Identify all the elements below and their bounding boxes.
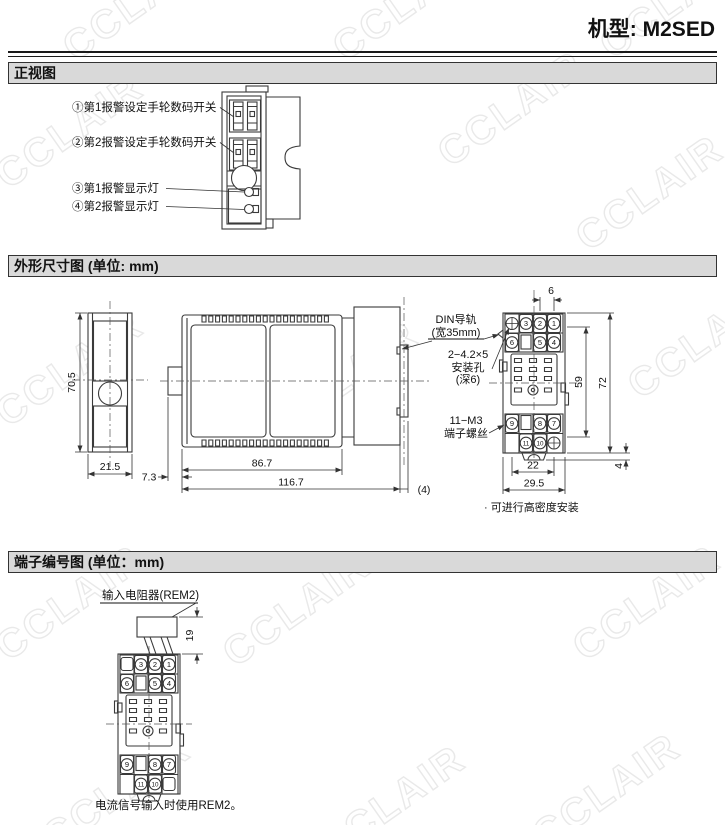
terminal-3: 3 [139,660,143,669]
dim-height-72: 72 [597,377,609,389]
dim-bezel-7-3: 7.3 [142,472,157,484]
terminal-1: 1 [167,660,171,669]
alarm-lamp-2 [245,205,254,214]
callout-switch-2: ②第2报警设定手轮数码开关 [72,135,217,149]
datasheet-page: CCLAIR CCLAIR CCLAIR CCLAIR CCLAIR CCLAI… [0,0,725,825]
front-view-device [222,86,300,229]
dim-height-70-5: 70.5 [66,372,78,393]
terminal-2: 2 [153,660,157,669]
section-title: 正视图 [14,65,56,81]
front-view-diagram: ①第1报警设定手轮数码开关 ②第2报警设定手轮数码开关 ③第1报警显示灯 ④第2… [0,85,725,255]
current-signal-note: 电流信号输入时使用REM2。 [95,798,242,812]
dim-front-view-drawing: 70.5 21.5 [66,301,148,479]
terminal-7: 7 [552,419,556,428]
dim-row-span-59: 59 [573,376,585,388]
watermark-text: CCLAIR [55,0,219,69]
terminal-screw-label-line2: 端子螺丝 [444,427,488,440]
terminal-6: 6 [125,679,129,688]
terminal-11: 11 [523,440,530,447]
rem2-resistor [137,617,177,637]
dim-total-116-7: 116.7 [278,477,304,489]
terminal-4: 4 [552,338,556,347]
alarm-lamp-1 [245,188,254,197]
section-header-terminal-diagram: 端子编号图 (单位：mm) [8,551,717,573]
terminal-4: 4 [167,679,171,688]
section-title: 端子编号图 (单位：mm) [14,554,164,570]
terminal-5: 5 [538,338,542,347]
callout-switch-1: ①第1报警设定手轮数码开关 [72,100,217,114]
dim-width-inner-22: 22 [527,460,539,472]
high-density-note: · 可进行高密度安装 [484,500,579,514]
resistor-label: 输入电阻器(REM2) [102,588,199,602]
dim-body-86-7: 86.7 [252,458,273,470]
terminal-5: 5 [153,679,157,688]
terminal-10: 10 [151,781,159,788]
terminal-8: 8 [538,419,542,428]
page-title: 机型: M2SED [588,13,715,43]
dim-side-view-drawing: 7.3 86.7 116.7 (4) [142,297,432,496]
terminal-9: 9 [125,760,129,769]
dim-rail-4: (4) [418,484,431,496]
terminal-11: 11 [138,781,145,788]
terminal-6: 6 [510,338,514,347]
callout-lamp-2: ④第2报警显示灯 [72,199,159,213]
dim-pitch-6: 6 [548,285,554,297]
terminal-3: 3 [524,319,528,328]
dim-foot-4: 4 [613,463,625,469]
terminal-screw-label-line1: 11−M3 [449,415,482,427]
header-rule [8,51,717,57]
terminal-7: 7 [167,760,171,769]
terminal-10: 10 [536,440,544,447]
section-header-front-view: 正视图 [8,62,717,84]
mounting-hole-label-line3: (深6) [456,373,480,386]
outline-dimensions-diagram: 70.5 21.5 [0,285,725,550]
terminal-numbering-diagram: 输入电阻器(REM2) 19 3 2 1 [0,578,725,825]
terminal-1: 1 [552,319,556,328]
callout-lamp-1: ③第1报警显示灯 [72,181,159,195]
din-rail-label-line2: (宽35mm) [432,325,481,339]
mounting-hole-label-line1: 2−4.2×5 [448,349,488,361]
section-title: 外形尺寸图 (单位: mm) [14,258,159,274]
terminal-2: 2 [538,319,542,328]
terminal-socket: 3 2 1 6 5 4 [106,646,192,804]
dim-width-21-5: 21.5 [100,461,121,473]
dim-resistor-19: 19 [184,630,196,642]
section-header-outline-dims: 外形尺寸图 (单位: mm) [8,255,717,277]
terminal-9: 9 [510,419,514,428]
dim-width-29-5: 29.5 [524,478,545,490]
din-rail-label-line1: DIN导轨 [436,312,477,326]
mounting-hole-label-line2: 安装孔 [452,360,485,374]
panel-screw-hole [232,166,257,191]
terminal-8: 8 [153,760,157,769]
rear-view-socket: 3 2 1 6 5 4 [489,290,583,465]
watermark-text: CCLAIR [325,0,489,69]
